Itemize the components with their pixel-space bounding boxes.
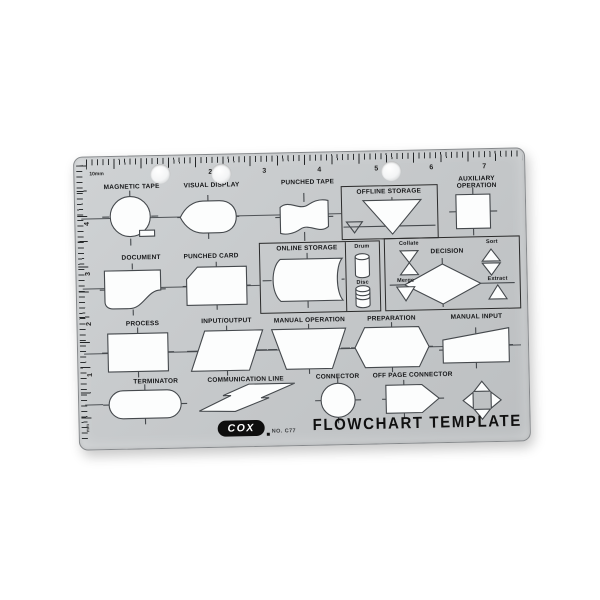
arrow-left-icon [463,392,473,408]
process-label: PROCESS [126,320,159,328]
drum-cutout [355,254,369,278]
product-title: FLOWCHART TEMPLATE [312,412,514,435]
top-ruler-number: 5 [374,165,378,172]
left-ruler-number: 3 [85,272,92,276]
preparation-label: PREPARATION [367,315,416,323]
merge-cutout [397,287,415,301]
manual-input-cutout [439,321,514,371]
left-ruler-number: 2 [86,322,93,326]
manual-input-label: MANUAL INPUT [450,313,502,322]
disc-cutout [356,286,370,308]
offline-storage-label: OFFLINE STORAGE [356,187,421,196]
manual-operation-cutout [268,323,351,375]
auxiliary-operation-cutout [449,187,498,236]
magnetic-tape-label: MAGNETIC TAPE [104,183,160,192]
punched-tape-label: PUNCHED TAPE [281,178,334,187]
top-ruler-number: 7 [482,163,486,170]
off-page-connector-cutout [382,379,445,418]
document-label: DOCUMENT [121,254,160,262]
punched-card-cutout [182,261,251,310]
collate-label: Collate [399,241,419,248]
model-number: NO. C77 [272,428,296,435]
visual-display-cutout [177,194,240,239]
communication-line-label: COMMUNICATION LINE [207,375,284,384]
collate-cutout [400,251,418,275]
sort-label: Sort [486,239,498,246]
input-output-cutout [187,325,268,377]
decision-label: DECISION [430,248,463,256]
terminator-cutout [103,383,188,425]
offline-storage-box: OFFLINE STORAGE [341,184,439,240]
communication-line-cutout [195,380,300,420]
zero-arrow-icon: → [78,163,84,169]
terminator-label: TERMINATOR [133,378,178,386]
left-ruler-number: 4 [84,222,91,226]
extract-cutout [489,285,507,299]
punched-tape-cutout [275,190,334,243]
top-ruler-number: 6 [429,164,433,171]
left-ruler-number: 1 [87,373,94,377]
hanging-hole [150,164,170,184]
extract-label: Extract [488,276,508,283]
disc-label: Disc [356,280,369,287]
decision-box: Collate DECISION Sort Merge Extract [384,235,521,311]
left-ruler-major-ticks [76,165,92,441]
preparation-cutout [351,321,434,373]
input-output-label: INPUT/OUTPUT [201,317,252,326]
online-storage-label: ONLINE STORAGE [276,244,337,253]
merge-label: Merge [397,278,414,285]
process-cutout [102,327,175,378]
punched-card-label: PUNCHED CARD [183,252,238,261]
auxiliary-operation-label: AUXILIARY OPERATION [451,175,501,191]
manual-operation-label: MANUAL OPERATION [274,316,345,325]
arrow-right-icon [491,392,501,408]
logo-dot [267,433,270,436]
document-cutout [99,263,166,316]
connector-label: CONNECTOR [316,373,360,381]
left-ruler-unit-label: mm [85,424,90,432]
cox-logo: COX [218,420,265,437]
decision-diamond-cutout [404,263,481,305]
top-ruler-number: 3 [262,168,266,175]
ruler-unit-label: 10mm [89,171,104,177]
arrow-up-icon [474,381,490,391]
flowchart-template-stencil: → 10mm 1 2 3 4 5 6 7 4 3 2 1 mm MAGNETIC… [73,147,531,450]
sort-cutout [482,249,501,275]
top-ruler-number: 4 [317,167,321,174]
drum-label: Drum [354,244,369,251]
hanging-hole [381,161,401,181]
top-ruler-major-ticks [86,150,522,169]
visual-display-label: VISUAL DISPLAY [184,181,240,190]
magnetic-tape-cutout [100,188,161,249]
online-storage-box: ONLINE STORAGE Drum Disc [259,240,381,314]
